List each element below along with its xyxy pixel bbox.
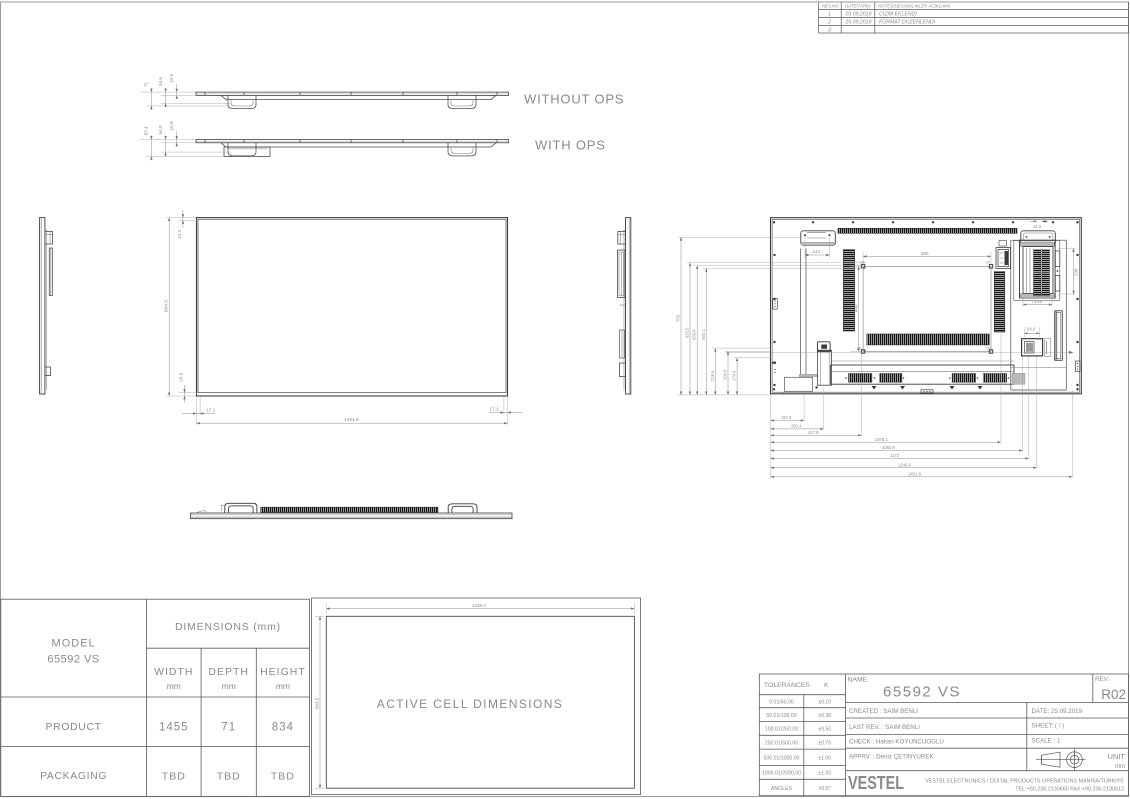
svg-text:DATE/TARIH: DATE/TARIH [845, 3, 871, 8]
svg-text:71: 71 [221, 722, 236, 734]
svg-text:25.09.2019: 25.09.2019 [845, 20, 872, 26]
svg-text:10.9: 10.9 [169, 74, 174, 83]
svg-text:834: 834 [272, 722, 294, 734]
svg-text:50.01/100.00: 50.01/100.00 [766, 713, 796, 719]
svg-text:DATE: 25.09.2019: DATE: 25.09.2019 [1032, 708, 1083, 715]
svg-text:71.59: 71.59 [1032, 299, 1043, 304]
svg-text:TBD: TBD [271, 771, 295, 783]
svg-text:219.6: 219.6 [710, 370, 715, 381]
svg-text:2: 2 [827, 20, 831, 26]
svg-text:1246.6: 1246.6 [898, 462, 911, 467]
svg-text:(0): (0) [860, 260, 864, 264]
svg-text:CIZIM EKLENDI: CIZIM EKLENDI [879, 12, 917, 18]
svg-text:SHEET: ( / ): SHEET: ( / ) [1032, 723, 1065, 730]
svg-text:WITH OPS: WITH OPS [535, 138, 606, 153]
svg-text:11.5: 11.5 [1033, 224, 1042, 229]
svg-text:CHECK : Hakan KOYUNCUOGLU: CHECK : Hakan KOYUNCUOGLU [849, 739, 944, 746]
svg-text:±1.50: ±1.50 [818, 771, 831, 777]
svg-text:427.8: 427.8 [808, 430, 819, 435]
svg-text:K: K [824, 682, 829, 689]
svg-text:FORMAT DUZENLENDI: FORMAT DUZENLENDI [879, 20, 936, 26]
svg-text:DIMENSIONS (mm): DIMENSIONS (mm) [175, 621, 281, 633]
svg-text:ACTIVE CELL DIMENSIONS: ACTIVE CELL DIMENSIONS [377, 697, 563, 711]
svg-text:DEPTH: DEPTH [208, 666, 249, 678]
svg-text:1455: 1455 [159, 722, 189, 734]
svg-text:(0): (0) [986, 260, 990, 264]
svg-text:1076.1: 1076.1 [875, 437, 888, 442]
svg-text:MODEL: MODEL [52, 638, 96, 650]
svg-text:PRODUCT: PRODUCT [46, 721, 102, 733]
svg-text:17.1: 17.1 [490, 407, 500, 413]
svg-text:±0.10: ±0.10 [818, 700, 831, 706]
svg-text:mm: mm [1115, 764, 1125, 770]
svg-text:mm: mm [167, 681, 181, 691]
svg-text:REV.NO: REV.NO [822, 3, 839, 8]
svg-text:TEL:+90.236.2130660 FAX:+90.23: TEL:+90.236.2130660 FAX:+90.236.2130512 [1015, 787, 1124, 793]
svg-text:NOTES/DEGISIKLIKLER ACIKLAMA: NOTES/DEGISIKLIKLER ACIKLAMA [878, 3, 951, 8]
svg-text:500.01/1000.00: 500.01/1000.00 [763, 756, 799, 762]
svg-text:1000.01/2500.00: 1000.01/2500.00 [762, 771, 801, 777]
svg-text:753: 753 [676, 314, 681, 322]
svg-text:TOLERANCES: TOLERANCES [764, 682, 810, 689]
svg-text:±0.30: ±0.30 [818, 713, 831, 719]
svg-text:71: 71 [144, 81, 149, 87]
svg-text:03.09.2019: 03.09.2019 [846, 12, 872, 18]
svg-text:834.5: 834.5 [163, 300, 169, 312]
svg-text:WIDTH: WIDTH [154, 666, 193, 678]
svg-text:616.5: 616.5 [685, 327, 690, 338]
svg-text:TBD: TBD [217, 771, 241, 783]
svg-text:592.1: 592.1 [701, 329, 706, 340]
svg-text:APPRV. : Deniz ÇETİNYUREK: APPRV. : Deniz ÇETİNYUREK [849, 754, 934, 761]
svg-text:87.4: 87.4 [144, 126, 149, 135]
svg-text:1401.8: 1401.8 [908, 471, 921, 476]
svg-text:±0.50: ±0.50 [818, 727, 831, 733]
svg-text:UNIT: UNIT [1108, 752, 1126, 761]
svg-text:803.5: 803.5 [315, 697, 320, 709]
svg-text:PACKAGING: PACKAGING [40, 770, 107, 782]
svg-text:238: 238 [1074, 268, 1079, 276]
svg-text:CREATED : SAIM BENLI: CREATED : SAIM BENLI [849, 708, 918, 715]
svg-text:100.01/250.00: 100.01/250.00 [765, 727, 798, 733]
svg-text:LAST REV. : SAIM BENLI: LAST REV. : SAIM BENLI [849, 724, 920, 731]
svg-text:54.0: 54.0 [1027, 327, 1036, 332]
svg-text:mm: mm [222, 681, 236, 691]
svg-text:(0): (0) [857, 347, 861, 351]
svg-text:400: 400 [854, 304, 859, 312]
svg-text:1428.2: 1428.2 [472, 603, 486, 608]
svg-text:TBD: TBD [162, 771, 186, 783]
svg-text:1173: 1173 [890, 453, 900, 458]
svg-text:R02: R02 [1101, 687, 1126, 702]
svg-text:54.6: 54.6 [158, 77, 163, 86]
svg-text:174.6: 174.6 [732, 370, 737, 381]
svg-text:NAME:: NAME: [848, 677, 870, 684]
svg-text:17.1: 17.1 [206, 408, 216, 414]
svg-text:SCALE : 1: SCALE : 1 [1032, 737, 1061, 744]
svg-text:VESTEL ELECTRONICS / DIJITAL P: VESTEL ELECTRONICS / DIJITAL PRODUCTS OP… [925, 779, 1124, 785]
svg-text:REV:: REV: [1095, 676, 1109, 683]
svg-text:603.4: 603.4 [692, 329, 697, 340]
svg-text:1082.6: 1082.6 [882, 445, 895, 450]
svg-text:65592 VS: 65592 VS [47, 654, 99, 666]
svg-text:ANGLES: ANGLES [771, 786, 793, 792]
svg-text:1: 1 [828, 12, 831, 18]
svg-text:204.6: 204.6 [723, 369, 728, 380]
svg-text:VESTEL: VESTEL [848, 773, 904, 793]
svg-text:3: 3 [828, 27, 831, 33]
svg-text:64.8: 64.8 [158, 125, 163, 134]
svg-text:15.9: 15.9 [179, 372, 185, 382]
svg-text:±0.5°: ±0.5° [819, 786, 831, 792]
svg-text:(0): (0) [987, 347, 991, 351]
svg-text:HEIGHT: HEIGHT [260, 666, 306, 678]
svg-text:250.01/500.00: 250.01/500.00 [765, 741, 798, 747]
svg-text:250.4: 250.4 [791, 424, 802, 429]
svg-text:1454.8: 1454.8 [344, 417, 359, 423]
svg-text:157.6: 157.6 [781, 415, 792, 420]
svg-text:65592 VS: 65592 VS [883, 684, 961, 701]
svg-text:WITHOUT OPS: WITHOUT OPS [524, 92, 624, 107]
svg-text:600: 600 [921, 251, 929, 256]
svg-text:0.01/50.00: 0.01/50.00 [769, 700, 794, 706]
svg-text:mm: mm [276, 681, 290, 691]
svg-text:10.9: 10.9 [169, 121, 174, 130]
svg-text:±1.00: ±1.00 [818, 756, 831, 762]
svg-text:12.2: 12.2 [177, 229, 183, 239]
svg-text:±0.75: ±0.75 [818, 741, 831, 747]
svg-text:143: 143 [813, 249, 821, 254]
